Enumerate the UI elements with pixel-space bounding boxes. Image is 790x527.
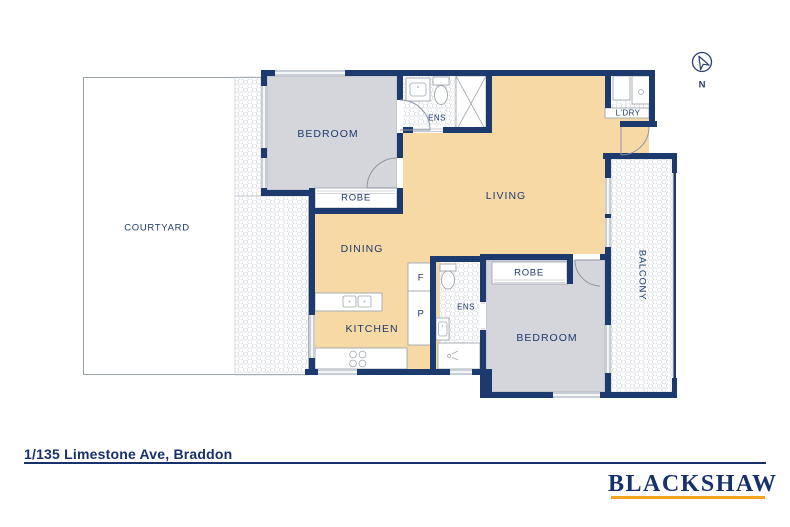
address-title: 1/135 Limestone Ave, Braddon	[24, 446, 232, 462]
room-label-dining: DINING	[341, 243, 384, 255]
footer-rule	[24, 462, 766, 464]
toilet-icon	[433, 77, 449, 105]
kitchen-island	[315, 293, 382, 311]
shower-icon	[456, 76, 486, 131]
room-label-laundry: L'DRY	[616, 109, 641, 118]
room-label-ens1: ENS	[428, 114, 446, 123]
room-label-ens2: ENS	[457, 303, 475, 312]
bedroom1-top-window	[275, 70, 345, 76]
ens2-bottom-window	[450, 369, 472, 375]
washer-icon	[613, 76, 650, 104]
room-label-balcony: BALCONY	[637, 250, 648, 300]
kitchen-bottom-window	[318, 369, 357, 375]
compass-north-label: N	[699, 80, 706, 91]
bedroom1-left-windows	[261, 86, 267, 188]
room-label-robe1: ROBE	[341, 193, 371, 204]
compass-icon	[693, 53, 712, 72]
room-label-living: LIVING	[486, 190, 526, 202]
bedroom2-bottom-window	[553, 392, 600, 398]
room-label-bedroom1: BEDROOM	[297, 128, 358, 140]
dining-west-window	[309, 315, 315, 358]
room-label-pantry: P	[417, 309, 424, 320]
room-label-fridge: F	[418, 273, 425, 284]
floor-plan-page: BEDROOM ENS L'DRY LIVING COURTYARD ROBE …	[0, 0, 790, 527]
room-label-bedroom2: BEDROOM	[516, 332, 577, 344]
living-balcony-slider	[605, 178, 611, 247]
room-label-robe2: ROBE	[514, 268, 544, 279]
vanity-icon	[406, 78, 430, 101]
basin2-icon	[436, 318, 449, 340]
brand-logo: BLACKSHAW	[608, 471, 766, 498]
room-label-kitchen: KITCHEN	[345, 323, 398, 335]
bedroom2-east-window	[605, 325, 611, 373]
brand-underline	[611, 496, 765, 499]
room-label-courtyard: COURTYARD	[124, 223, 190, 234]
cooktop-icon	[315, 348, 407, 369]
toilet2-icon	[440, 264, 456, 289]
shower2-icon	[438, 343, 480, 369]
